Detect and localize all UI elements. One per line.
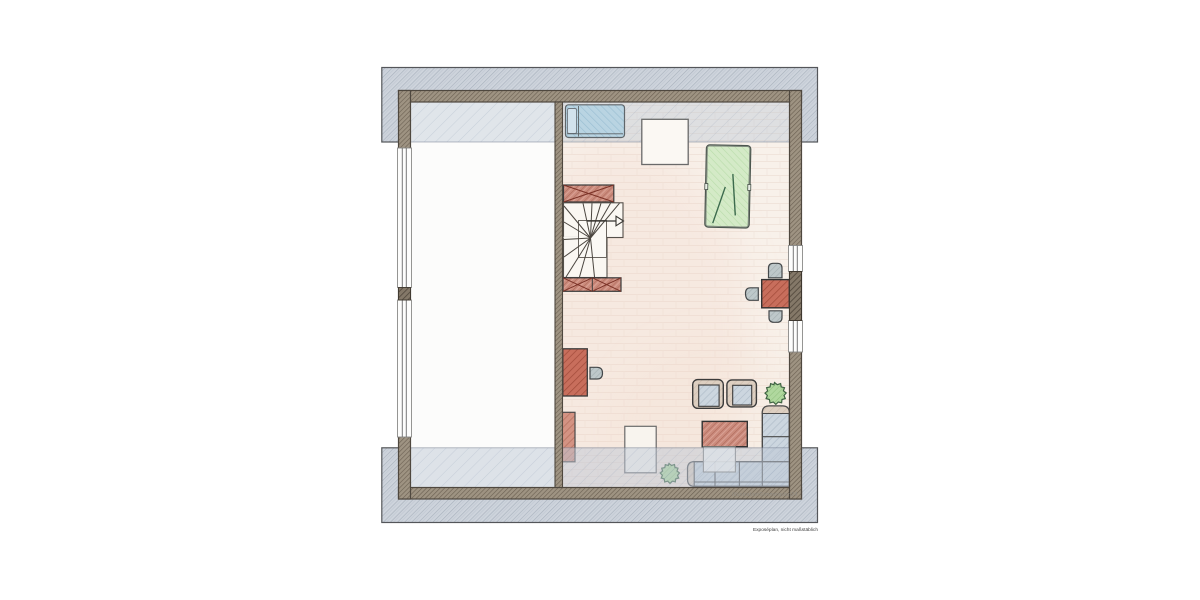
svg-text:Illustration©immoxplan24: Illustration©immoxplan24 <box>732 491 798 498</box>
svg-text:Exposéplan, nicht maßstäblich: Exposéplan, nicht maßstäblich <box>753 527 818 533</box>
